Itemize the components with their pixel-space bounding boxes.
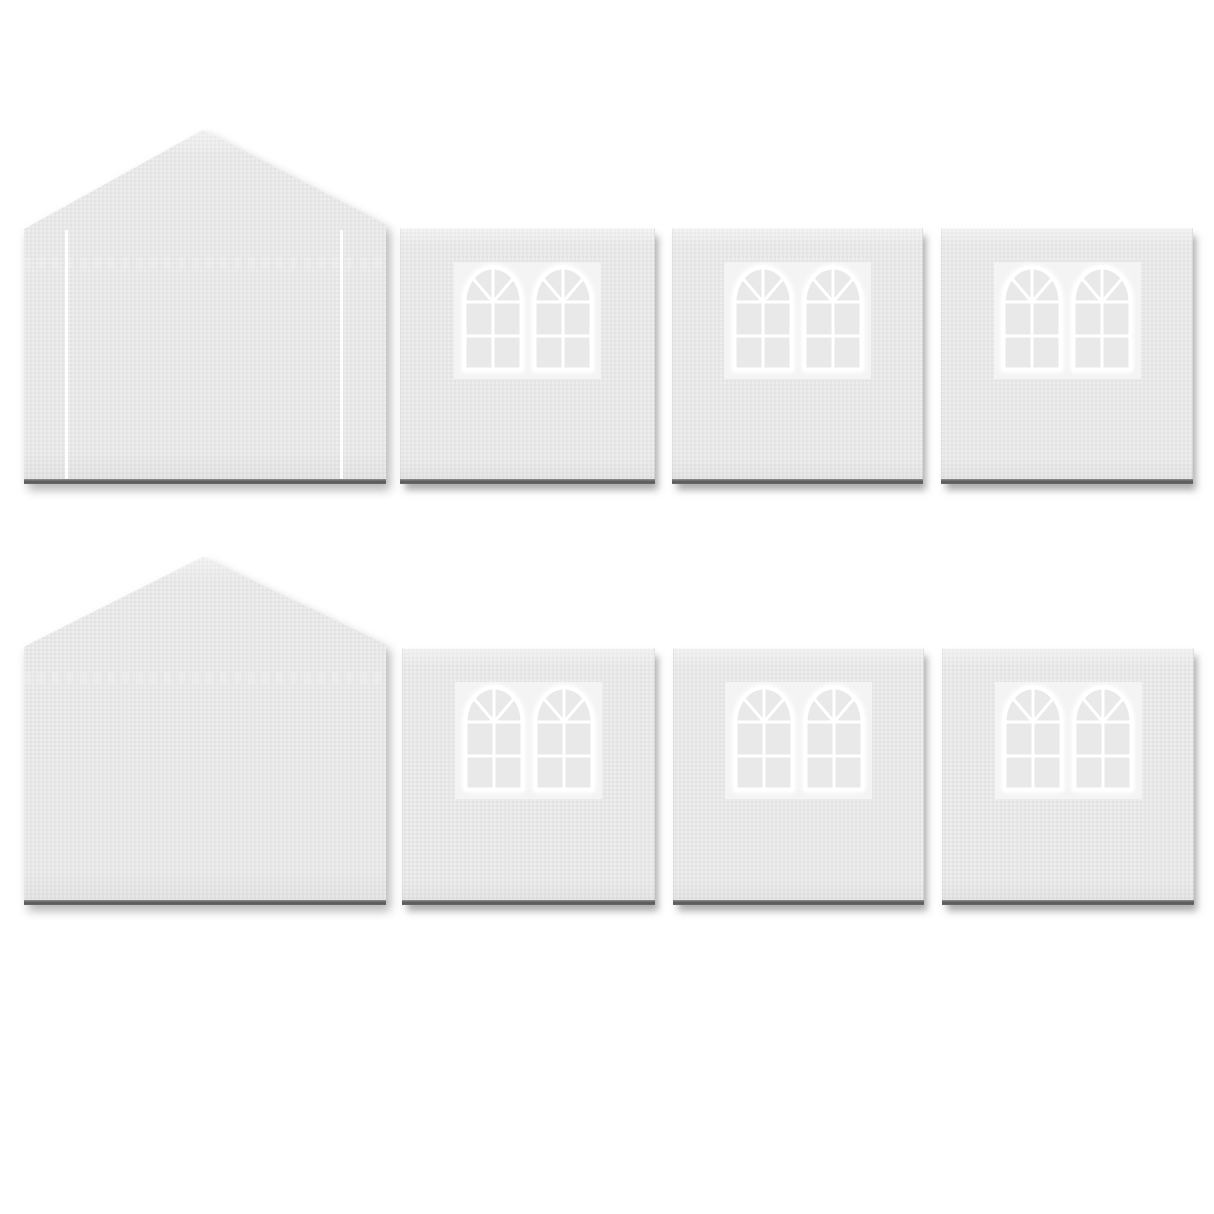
window-backdrop [725,682,872,799]
arched-window-icon [1071,265,1133,372]
arched-window-icon [802,265,864,372]
window-backdrop [455,682,602,799]
window-backdrop [724,262,871,379]
gable-panel-plain [24,557,386,905]
window-sidewall-panel [673,648,924,905]
panel-bottom-edge [24,900,386,905]
panel-bottom-edge [400,479,655,484]
arched-window-icon [733,685,795,792]
arched-window-icon [803,685,865,792]
window-backdrop [995,682,1142,799]
panel-bottom-edge [402,900,655,905]
arched-window-icon [1001,265,1063,372]
gable-panel-surface [24,557,386,905]
panel-bottom-edge [942,900,1194,905]
arched-window-icon [533,685,595,792]
window-backdrop [454,262,601,379]
window-sidewall-panel [402,648,655,905]
arched-window-icon [732,265,794,372]
window-sidewall-panel [400,228,655,484]
window-backdrop [994,262,1141,379]
fabric-weave-band [24,672,386,684]
door-zipper-line-right [340,230,343,479]
door-zipper-line-left [65,230,68,479]
panel-bottom-edge [672,479,923,484]
panel-bottom-edge [24,479,386,484]
gable-panel-surface [24,130,386,484]
arched-window-icon [462,265,524,372]
arched-window-icon [532,265,594,372]
fabric-weave-band [24,257,386,269]
panel-bottom-edge [673,900,924,905]
arched-window-icon [1002,685,1064,792]
window-sidewall-panel [672,228,923,484]
arched-window-icon [463,685,525,792]
panel-bottom-edge [941,479,1193,484]
arched-window-icon [1072,685,1134,792]
window-sidewall-panel [941,228,1193,484]
product-image-canvas [0,0,1214,1214]
gable-panel-with-door [24,130,386,484]
window-sidewall-panel [942,648,1194,905]
